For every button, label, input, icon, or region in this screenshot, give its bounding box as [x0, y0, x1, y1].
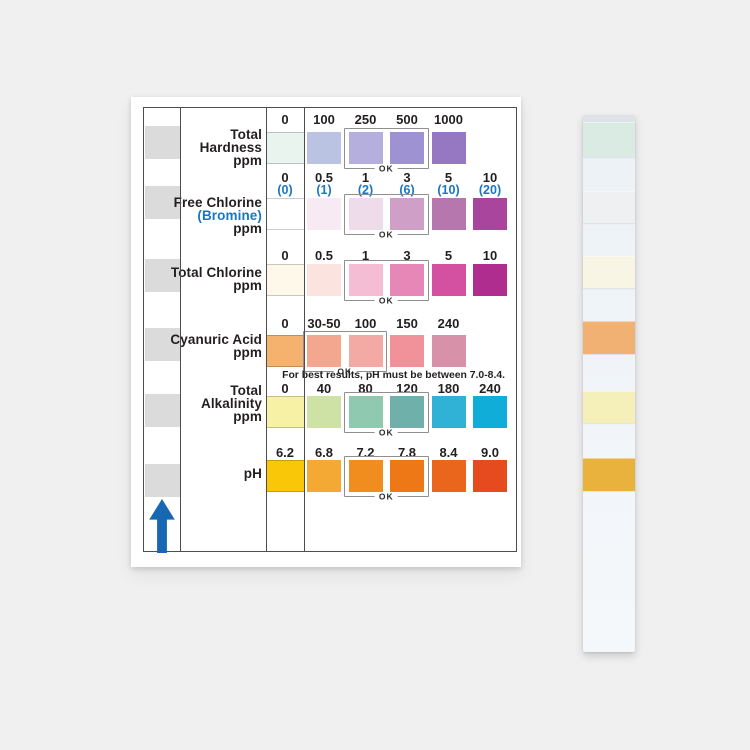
ok-label: OK [375, 164, 398, 173]
guide-pad-total-alkalinity [145, 394, 180, 427]
row-label-total-alkalinity: TotalAlkalinityppm [201, 384, 262, 423]
swatch-free-chlorine-0.5 [307, 198, 341, 230]
swatch-cyanuric-acid-240 [432, 335, 466, 367]
up-arrow-icon [145, 498, 179, 553]
guide-pad-total-hardness [145, 126, 180, 159]
row-label-total-hardness: TotalHardnessppm [200, 128, 262, 167]
ok-label: OK [375, 428, 398, 437]
divider-label-column [266, 108, 267, 551]
value-label: 1000 [409, 113, 489, 126]
swatch-total-chlorine-10 [473, 264, 507, 296]
zero-swatch-free-chlorine [266, 198, 304, 230]
ph-note: For best results, pH must be between 7.0… [282, 370, 505, 381]
swatch-free-chlorine-5 [432, 198, 466, 230]
row-label-line: ppm [171, 279, 262, 292]
row-label-line: ppm [174, 222, 262, 235]
row-label-line: ppm [201, 410, 262, 423]
chart-table: For best results, pH must be between 7.0… [143, 107, 517, 552]
swatch-total-hardness-1000 [432, 132, 466, 164]
ok-range-box-ph: OK [344, 456, 429, 497]
swatch-ph-6.8 [307, 460, 341, 492]
strip-pad-total-hardness [583, 122, 635, 157]
ok-range-box-total-alkalinity: OK [344, 392, 429, 433]
ok-range-box-cyanuric-acid: OK [303, 331, 388, 372]
strip-top-edge [583, 115, 635, 122]
ok-label: OK [375, 296, 398, 305]
row-label-ph: pH [244, 467, 262, 480]
swatch-free-chlorine-10 [473, 198, 507, 230]
page: { "colors": { "accent_blue": "#1b76bf", … [0, 0, 750, 750]
ok-range-box-free-chlorine: OK [344, 194, 429, 235]
strip-pad-cyanuric-acid [583, 321, 635, 354]
strip-pad-total-chlorine [583, 256, 635, 288]
strip-pad-total-alkalinity [583, 391, 635, 423]
zero-swatch-total-hardness [266, 132, 304, 164]
strip-pad-ph [583, 458, 635, 491]
swatch-total-chlorine-5 [432, 264, 466, 296]
swatch-ph-8.4 [432, 460, 466, 492]
value-label: 9.0 [450, 446, 530, 459]
row-label-line: pH [244, 467, 262, 480]
swatch-cyanuric-acid-150 [390, 335, 424, 367]
row-label-free-chlorine: Free Chlorine(Bromine)ppm [174, 196, 262, 235]
divider-zero-column [304, 108, 305, 551]
ok-range-box-total-chlorine: OK [344, 260, 429, 301]
zero-swatch-cyanuric-acid [266, 335, 304, 367]
ok-label: OK [375, 230, 398, 239]
swatch-total-hardness-100 [307, 132, 341, 164]
row-label-line: ppm [170, 346, 262, 359]
guide-pad-ph [145, 464, 180, 497]
test-strip [583, 115, 635, 652]
subvalue-label: (20) [450, 184, 530, 197]
swatch-total-alkalinity-180 [432, 396, 466, 428]
row-label-total-chlorine: Total Chlorineppm [171, 266, 262, 292]
value-label: 240 [409, 317, 489, 330]
row-label-cyanuric-acid: Cyanuric Acidppm [170, 333, 262, 359]
zero-swatch-total-alkalinity [266, 396, 304, 428]
zero-swatch-ph [266, 460, 304, 492]
swatch-ph-9.0 [473, 460, 507, 492]
divider-guide-column [180, 108, 181, 551]
swatch-total-alkalinity-240 [473, 396, 507, 428]
ok-label: OK [375, 492, 398, 501]
zero-swatch-total-chlorine [266, 264, 304, 296]
row-label-line: ppm [200, 154, 262, 167]
value-label: 240 [450, 382, 530, 395]
ok-range-box-total-hardness: OK [344, 128, 429, 169]
strip-pad-free-chlorine [583, 191, 635, 223]
swatch-total-alkalinity-40 [307, 396, 341, 428]
reference-card: For best results, pH must be between 7.0… [131, 97, 521, 567]
swatch-total-chlorine-0.5 [307, 264, 341, 296]
value-label: 10 [450, 249, 530, 262]
